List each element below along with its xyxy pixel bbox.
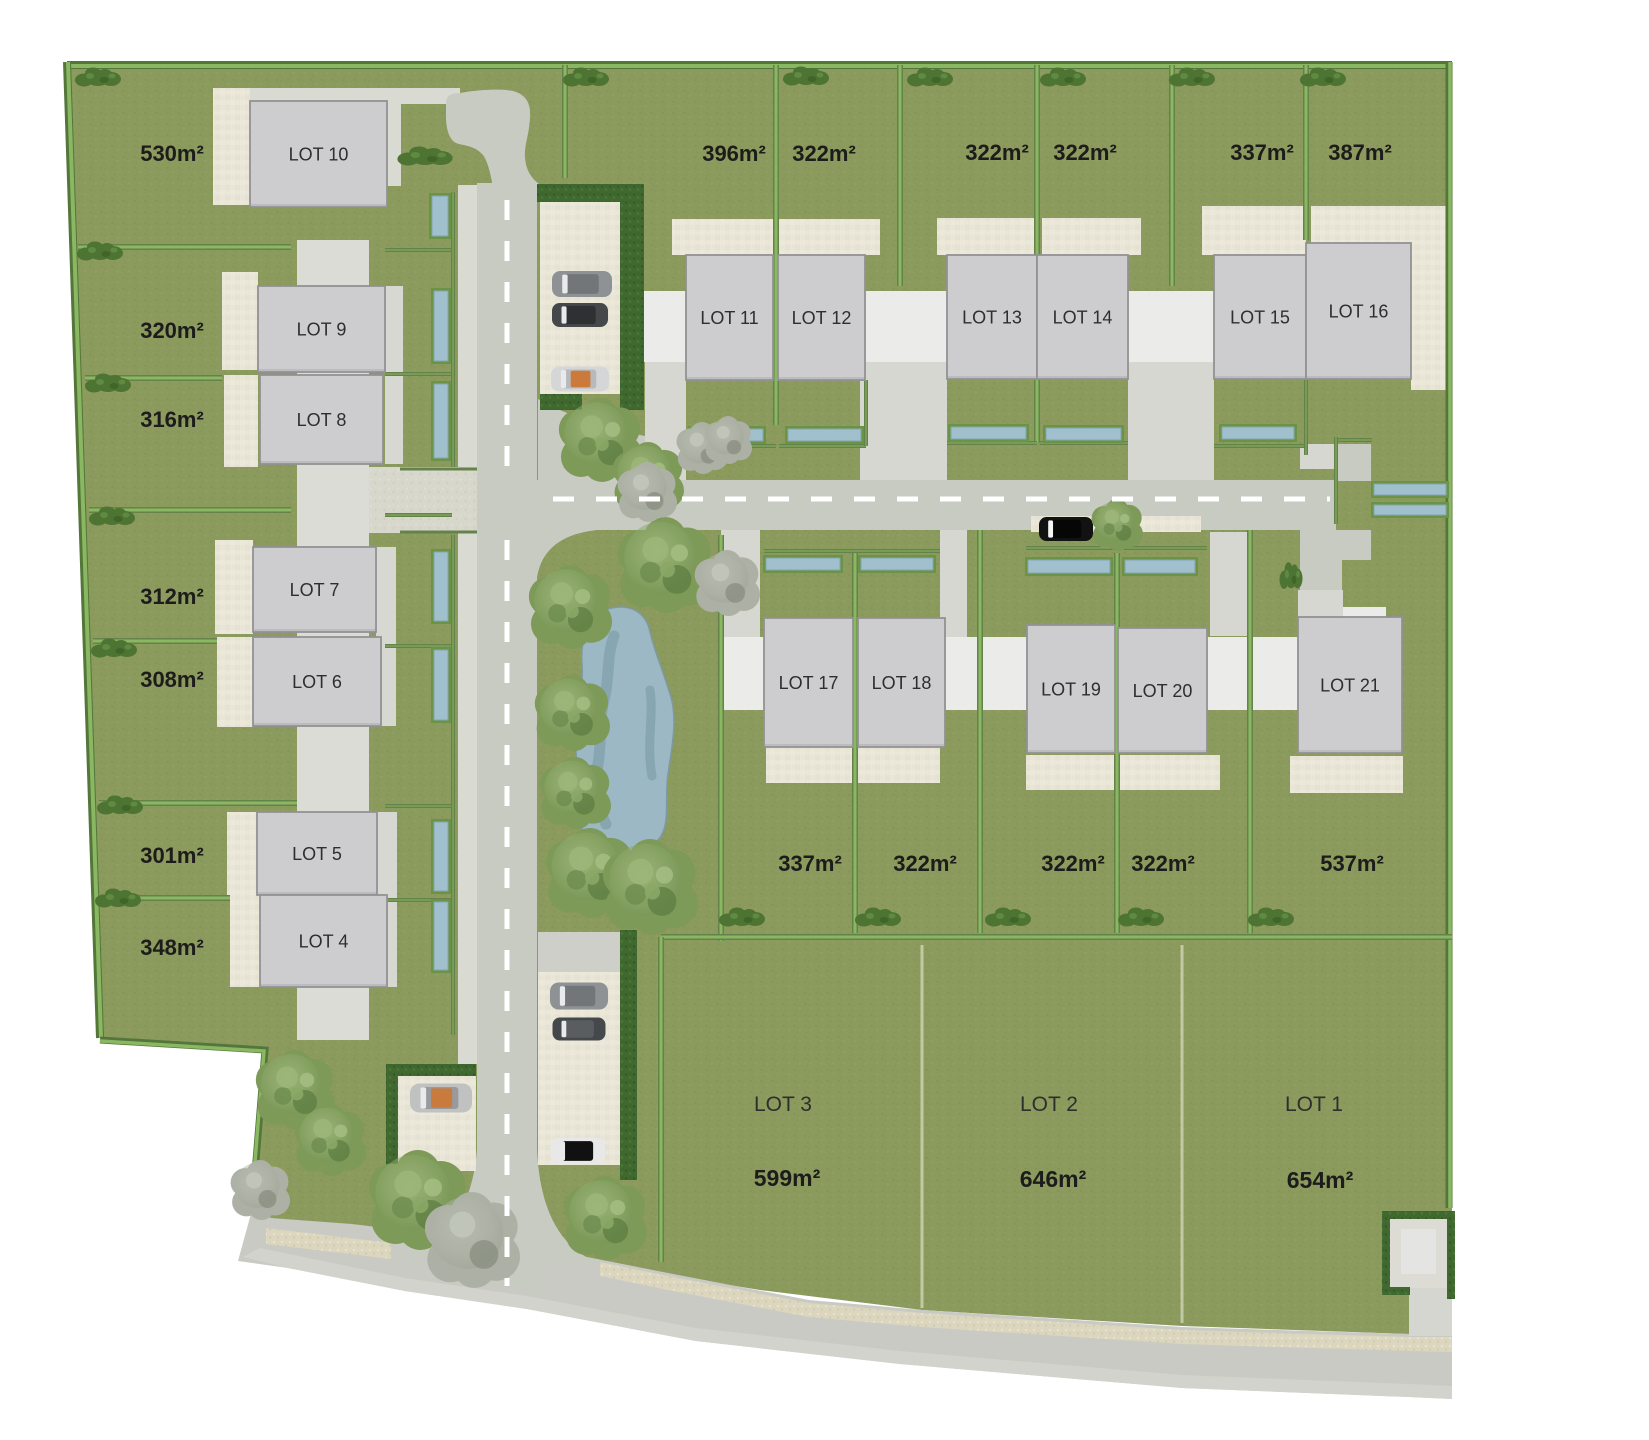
- svg-text:322m²: 322m²: [1131, 851, 1195, 876]
- svg-text:312m²: 312m²: [140, 584, 204, 609]
- svg-text:537m²: 537m²: [1320, 851, 1384, 876]
- svg-text:LOT 5: LOT 5: [292, 844, 342, 864]
- svg-text:LOT 17: LOT 17: [779, 673, 839, 693]
- svg-text:LOT 8: LOT 8: [297, 410, 347, 430]
- svg-text:337m²: 337m²: [1230, 140, 1294, 165]
- svg-text:LOT 11: LOT 11: [700, 308, 758, 328]
- svg-text:322m²: 322m²: [792, 141, 856, 166]
- svg-text:LOT 15: LOT 15: [1230, 307, 1290, 327]
- svg-text:LOT 19: LOT 19: [1041, 679, 1101, 699]
- svg-text:646m²: 646m²: [1020, 1166, 1087, 1192]
- svg-text:322m²: 322m²: [1053, 140, 1117, 165]
- svg-text:LOT 9: LOT 9: [297, 319, 347, 339]
- svg-text:LOT 12: LOT 12: [792, 308, 852, 328]
- svg-text:LOT 2: LOT 2: [1020, 1093, 1078, 1116]
- svg-text:308m²: 308m²: [140, 667, 204, 692]
- svg-text:387m²: 387m²: [1328, 140, 1392, 165]
- svg-text:LOT 3: LOT 3: [754, 1093, 812, 1116]
- svg-text:301m²: 301m²: [140, 843, 204, 868]
- svg-text:599m²: 599m²: [754, 1165, 821, 1191]
- svg-text:396m²: 396m²: [702, 141, 766, 166]
- svg-text:322m²: 322m²: [965, 140, 1029, 165]
- svg-text:348m²: 348m²: [140, 935, 204, 960]
- svg-text:320m²: 320m²: [140, 318, 204, 343]
- svg-text:LOT 20: LOT 20: [1133, 681, 1193, 701]
- svg-text:LOT 6: LOT 6: [292, 672, 342, 692]
- svg-text:316m²: 316m²: [140, 407, 204, 432]
- svg-text:654m²: 654m²: [1287, 1167, 1354, 1193]
- svg-text:LOT 16: LOT 16: [1329, 301, 1389, 321]
- svg-text:322m²: 322m²: [893, 851, 957, 876]
- svg-text:337m²: 337m²: [778, 851, 842, 876]
- svg-text:LOT 10: LOT 10: [289, 144, 349, 164]
- svg-text:LOT 13: LOT 13: [962, 307, 1022, 327]
- svg-text:322m²: 322m²: [1041, 851, 1105, 876]
- svg-text:LOT 18: LOT 18: [872, 673, 932, 693]
- svg-text:LOT 7: LOT 7: [290, 580, 340, 600]
- svg-text:530m²: 530m²: [140, 141, 204, 166]
- svg-text:LOT 4: LOT 4: [299, 931, 349, 951]
- svg-text:LOT 21: LOT 21: [1320, 675, 1380, 695]
- svg-text:LOT 14: LOT 14: [1053, 307, 1113, 327]
- svg-text:LOT 1: LOT 1: [1285, 1093, 1343, 1116]
